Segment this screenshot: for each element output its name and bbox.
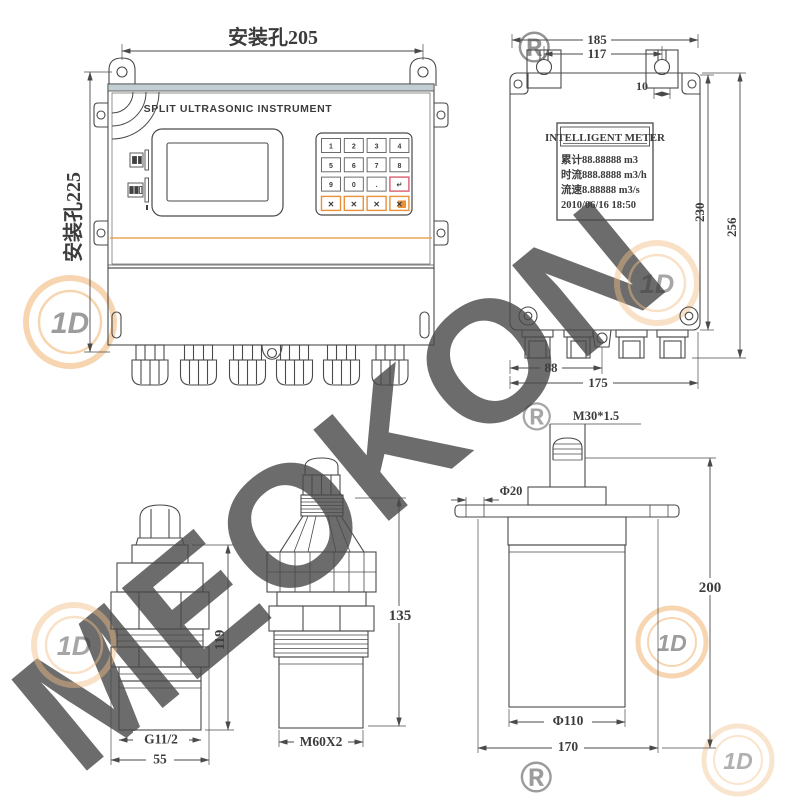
key-2-label: 2 [352,144,356,151]
watermark-logo-4: 1D [638,608,706,676]
dim-bracket-slot-10: 10 [636,79,670,99]
watermark-registered-1: ® [518,23,550,72]
cable-gland [230,345,266,385]
dim-label-230: 230 [692,203,707,223]
dim-label-10: 10 [636,79,648,93]
sensor-large-body [509,545,625,707]
watermark-registered-3: ® [520,753,552,800]
rear-lcd-line2: 时流888.8888 m3/h [561,168,647,181]
dim-label-phi20: Φ20 [500,484,523,498]
dim-label-135: 135 [389,608,412,624]
watermark-logo-monogram: 1D [657,630,686,656]
technical-drawing-page: MEOKON ® ® ® 1D 1D 1D 1D 1D [0,0,800,800]
mount-ear-right-hole [418,67,428,77]
watermark-logo-monogram: 1D [723,748,752,774]
key-6-label: 6 [352,163,356,170]
key-dot-label: . [376,182,378,189]
key-enter-label: ↵ [396,182,402,189]
rear-lcd: INTELLIGENT METER 累计88.88888 m3 时流888.88… [545,123,666,220]
dim-label-175: 175 [588,375,608,390]
enclosure-door-lid-strip [108,84,434,91]
watermark-logo-monogram: 1D [51,307,89,340]
dim-label-g112: G11/2 [144,732,178,747]
dim-hole-spacing-117: 117 [544,46,662,61]
ground-tab-hole [268,349,277,358]
rear-lcd-line4: 2010/06/16 18:50 [561,200,636,211]
dim-label-200: 200 [699,580,722,596]
dim-thread-m60x2: M60X2 [279,730,363,749]
watermark-registered-2: ® [522,395,551,439]
dim-label-256: 256 [724,217,739,237]
key-5-label: 5 [329,163,333,170]
cable-gland [181,345,217,385]
mount-ear-right [410,58,436,86]
key-4-label: 4 [397,144,401,151]
key-0-label: 0 [352,182,356,189]
rear-lcd-title: INTELLIGENT METER [545,132,666,144]
function-key-1-glyph: ✕ [328,200,335,209]
function-key-4-glyph: ✕ [396,200,403,209]
rear-corner-tab-left [510,73,528,94]
dim-label-mount-width: 安装孔205 [228,25,318,49]
dim-label-117: 117 [588,46,607,61]
rear-lcd-line3: 流速8.88888 m3/s [561,183,640,196]
rear-lcd-line1: 累计88.88888 m3 [561,153,638,166]
dim-label-m30: M30*1.5 [573,409,619,423]
key-1-label: 1 [329,144,333,151]
dim-label-mount-height: 安装孔225 [61,172,85,262]
key-7-label: 7 [375,163,379,170]
dim-body-dia-110: Φ110 [509,709,625,728]
key-3-label: 3 [375,144,379,151]
rear-corner-tab-right [682,73,700,94]
dim-mount-width-205: 安装孔205 [122,25,423,60]
front-panel-title: SPLIT ULTRASONIC INSTRUMENT [144,103,333,115]
mount-ear-left [109,58,135,86]
watermark-logo-monogram: 1D [640,269,675,299]
sensor-medium-body [279,657,363,728]
dim-label-119: 119 [213,630,228,650]
key-8-label: 8 [397,163,401,170]
watermark-logo-2: 1D [617,243,697,323]
dim-label-170: 170 [558,739,579,754]
drawing-svg: MEOKON ® ® ® 1D 1D 1D 1D 1D [0,0,800,800]
watermark-logo-1: 1D [26,278,114,366]
watermark-logo-3: 1D [34,605,114,685]
watermark-logo-5: 1D [704,726,772,794]
dim-label-88: 88 [545,360,559,375]
dim-label-55: 55 [153,752,167,767]
function-key-2-glyph: ✕ [350,200,357,209]
cable-gland [132,345,168,385]
dim-label-m60x2: M60X2 [300,734,343,749]
stem-collar [528,487,606,505]
dim-label-185: 185 [587,32,607,47]
key-9-label: 9 [329,182,333,189]
function-key-3-glyph: ✕ [373,200,380,209]
flange-plate [455,505,679,517]
cable-gland [277,345,313,385]
mount-ear-left-hole [117,67,127,77]
dim-label-phi110: Φ110 [553,713,584,728]
watermark-logo-monogram: 1D [57,631,92,661]
